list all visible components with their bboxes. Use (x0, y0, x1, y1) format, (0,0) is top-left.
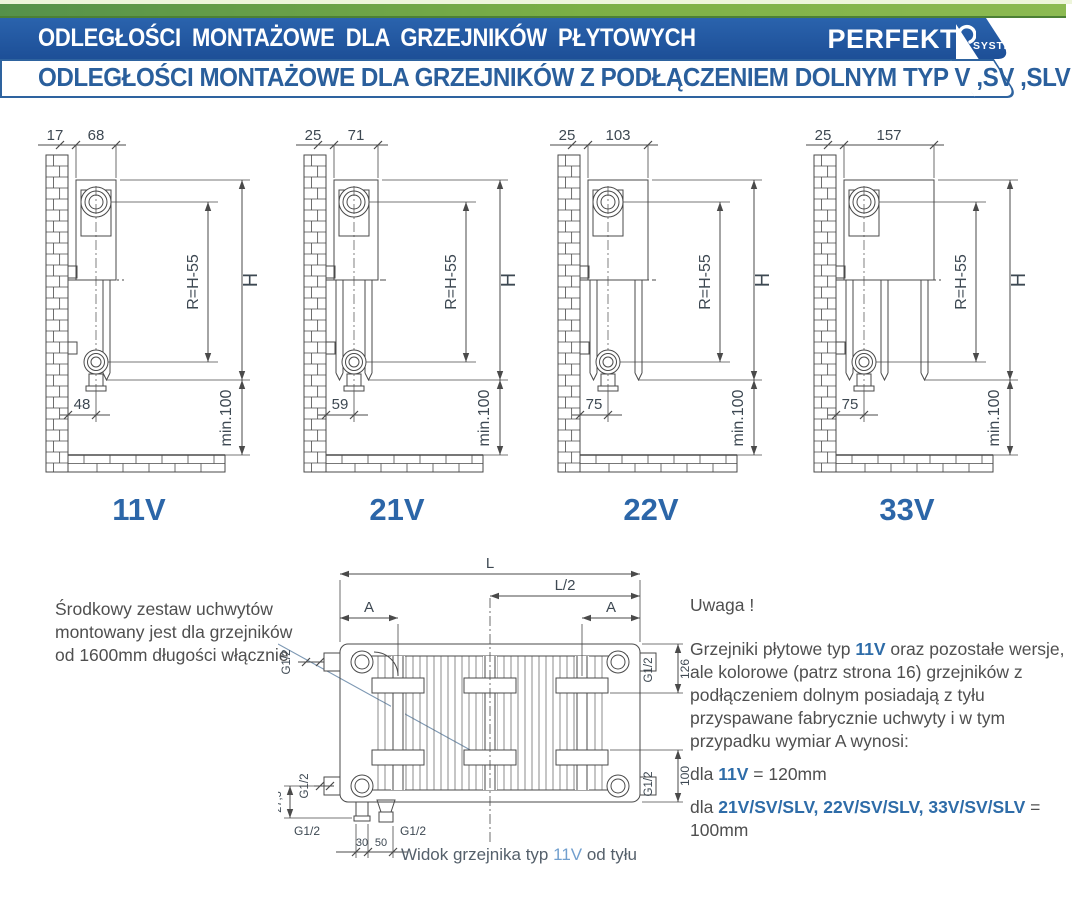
dim-height-H: H (752, 273, 774, 287)
dim-wall-gap: 25 (559, 130, 576, 144)
dim-g12-pipe-right: G1/2 (400, 824, 426, 838)
uwaga-title: Uwaga ! (690, 595, 1068, 616)
dla-11v-line: dla 11V = 120mm (690, 763, 1068, 786)
figure-11v: 1768HR=H-55min.10048 11V (10, 130, 268, 528)
dim-min100: min.100 (986, 389, 1003, 446)
dim-min100: min.100 (218, 389, 235, 446)
uwaga-paragraph: Grzejniki płytowe typ 11V oraz pozostałe… (690, 638, 1068, 753)
dim-L2: L/2 (555, 577, 576, 594)
dim-height-H: H (240, 273, 262, 287)
dim-r-h55: R=H-55 (185, 254, 202, 310)
dim-height-H: H (498, 273, 520, 287)
dim-A-left: A (364, 599, 374, 616)
caption-type: 11V (553, 845, 582, 864)
dim-pipe-offset: 59 (332, 396, 349, 413)
dim-height-H: H (1008, 273, 1030, 287)
dla1-value: = 120mm (748, 764, 826, 784)
dim-r-h55: R=H-55 (443, 254, 460, 310)
dim-pipe-offset: 75 (586, 396, 603, 413)
notes-right: Uwaga ! Grzejniki płytowe typ 11V oraz p… (690, 595, 1068, 851)
top-green-band (0, 4, 1066, 18)
figure-21v: 2571HR=H-55min.10059 21V (268, 130, 526, 528)
diagram-33v: 25157HR=H-55min.10075 (778, 130, 1036, 480)
type-label-33v: 33V (778, 492, 1036, 528)
dim-pipe-offset: 75 (842, 396, 859, 413)
dla1-pre: dla (690, 764, 718, 784)
dim-27-5: 27,5 (278, 791, 284, 812)
type-label-21v: 21V (268, 492, 526, 528)
para-type-11v: 11V (855, 639, 885, 659)
dim-min100: min.100 (730, 389, 747, 446)
rear-view-caption: Widok grzejnika typ 11V od tyłu (401, 845, 637, 865)
dim-50: 50 (375, 837, 387, 849)
dim-A-right: A (606, 599, 616, 616)
dim-r-h55: R=H-55 (953, 254, 970, 310)
page: ODLEGŁOŚCI MONTAŻOWE DLA GRZEJNIKÓW PŁYT… (0, 0, 1072, 898)
caption-prefix: Widok grzejnika typ (401, 845, 553, 864)
dim-g12-top-left: G1/2 (281, 650, 293, 675)
caption-suffix: od tyłu (582, 845, 637, 864)
dim-pipe-offset: 48 (74, 396, 91, 413)
dim-depth: 157 (876, 130, 901, 144)
page-subtitle: ODLEGŁOŚCI MONTAŻOWE DLA GRZEJNIKÓW Z PO… (38, 62, 1070, 93)
perfekt-logo: PERFEKT SYSTEM (828, 26, 1022, 53)
logo-text: PERFEKT (828, 26, 958, 53)
rear-view-diagram: LL/2AAG1/2G1/2126G1/227,5G1/2100G1/2G1/2… (278, 552, 693, 888)
dla2-pre: dla (690, 797, 718, 817)
dim-r-h55: R=H-55 (697, 254, 714, 310)
dla1-types: 11V (718, 764, 748, 784)
figure-22v: 25103HR=H-55min.10075 22V (522, 130, 780, 528)
dim-depth: 68 (88, 130, 105, 144)
diagram-11v: 1768HR=H-55min.10048 (10, 130, 268, 480)
type-label-11v: 11V (10, 492, 268, 528)
dim-wall-gap: 17 (47, 130, 64, 144)
dim-wall-gap: 25 (815, 130, 832, 144)
note-center-brackets: Środkowy zestaw uchwytów montowany jest … (55, 598, 305, 667)
dim-30: 30 (356, 837, 368, 849)
figure-33v: 25157HR=H-55min.10075 33V (778, 130, 1036, 528)
dim-g12-bottom-right: G1/2 (643, 772, 655, 797)
diagram-22v: 25103HR=H-55min.10075 (522, 130, 780, 480)
page-title: ODLEGŁOŚCI MONTAŻOWE DLA GRZEJNIKÓW PŁYT… (38, 24, 696, 53)
dla-other-line: dla 21V/SV/SLV, 22V/SV/SLV, 33V/SV/SLV =… (690, 796, 1068, 842)
diagram-21v: 2571HR=H-55min.10059 (268, 130, 526, 480)
dim-depth: 71 (348, 130, 365, 144)
dim-g12-top-right: G1/2 (643, 658, 655, 683)
type-label-22v: 22V (522, 492, 780, 528)
dim-depth: 103 (605, 130, 630, 144)
dim-wall-gap: 25 (305, 130, 322, 144)
logo-subtext: SYSTEM (973, 40, 1021, 52)
dla2-types: 21V/SV/SLV, 22V/SV/SLV, 33V/SV/SLV (718, 797, 1025, 817)
dim-g12-pipe-left: G1/2 (294, 824, 320, 838)
dim-L: L (486, 555, 494, 572)
para-text: Grzejniki płytowe typ (690, 639, 855, 659)
dim-min100: min.100 (476, 389, 493, 446)
